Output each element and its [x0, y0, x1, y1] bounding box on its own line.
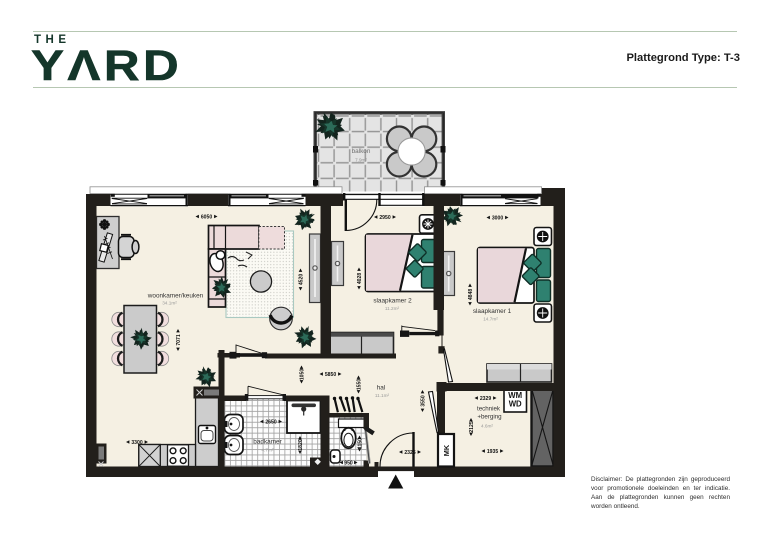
svg-text:1550: 1550: [356, 379, 362, 390]
svg-text:11.2m²: 11.2m²: [385, 306, 400, 311]
svg-text:14.7m²: 14.7m²: [483, 316, 498, 321]
svg-text:11.1m²: 11.1m²: [375, 393, 390, 398]
svg-text:1150: 1150: [357, 438, 363, 449]
svg-text:4.6m²: 4.6m²: [481, 424, 493, 429]
svg-text:woonkamer/keuken: woonkamer/keuken: [147, 293, 204, 300]
svg-text:4848: 4848: [468, 289, 474, 300]
svg-text:4520: 4520: [298, 274, 304, 285]
svg-text:2950: 2950: [379, 215, 390, 221]
svg-text:34.1m²: 34.1m²: [162, 301, 177, 306]
svg-text:MK: MK: [442, 444, 451, 456]
svg-text:WM: WM: [508, 391, 522, 400]
svg-text:slaapkamer 2: slaapkamer 2: [373, 298, 412, 305]
svg-text:4028: 4028: [357, 273, 363, 284]
svg-text:1050: 1050: [299, 369, 305, 380]
svg-text:hal: hal: [377, 385, 386, 392]
svg-text:2329: 2329: [480, 396, 491, 402]
svg-text:1820: 1820: [298, 439, 304, 450]
svg-text:WD: WD: [509, 400, 522, 409]
svg-text:3000: 3000: [492, 215, 503, 221]
svg-text:7071: 7071: [176, 334, 182, 345]
svg-text:4.7m²: 4.7m²: [262, 448, 274, 453]
svg-text:950: 950: [344, 460, 353, 466]
svg-text:3300: 3300: [131, 440, 142, 446]
svg-text:5850: 5850: [325, 372, 336, 378]
svg-text:2325: 2325: [404, 450, 415, 456]
svg-text:6050: 6050: [201, 214, 212, 220]
svg-text:techniek: techniek: [477, 406, 501, 413]
svg-text:badkamer: badkamer: [253, 439, 282, 446]
svg-text:2650: 2650: [265, 419, 276, 425]
svg-text:7.9m²: 7.9m²: [355, 158, 367, 163]
svg-text:2125: 2125: [469, 421, 475, 432]
svg-text:slaapkamer 1: slaapkamer 1: [473, 308, 512, 315]
svg-text:1935: 1935: [487, 449, 498, 455]
svg-text:3550: 3550: [420, 395, 426, 406]
svg-text:balkon: balkon: [352, 148, 371, 155]
svg-text:+berging: +berging: [477, 414, 502, 421]
